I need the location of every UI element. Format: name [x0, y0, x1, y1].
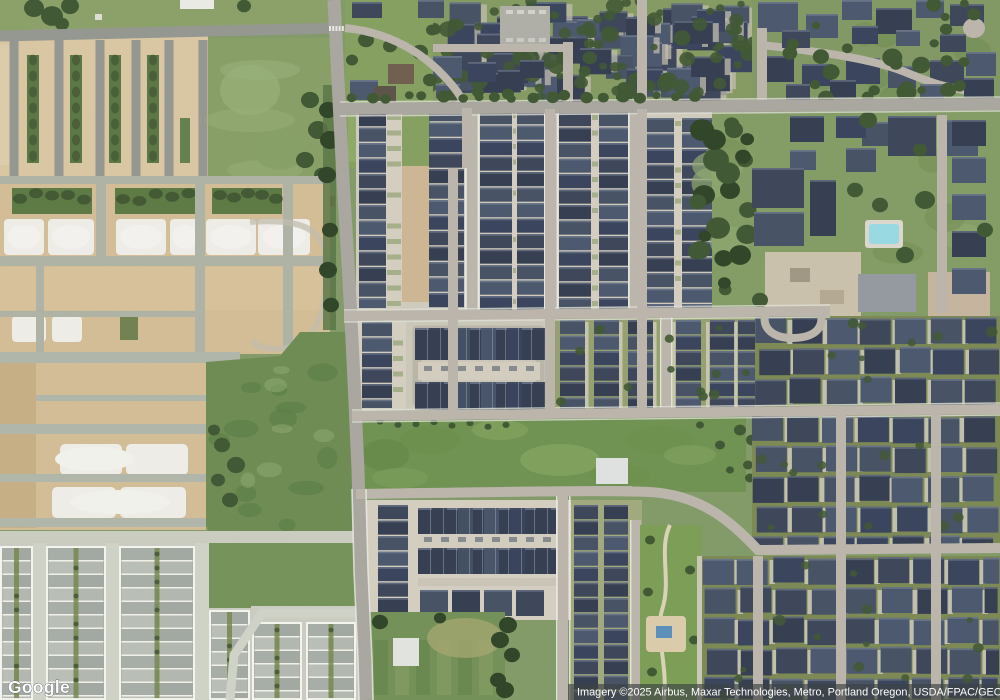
svg-text:Google: Google: [8, 677, 70, 697]
svg-text:Imagery ©2025 Airbus, Maxar Te: Imagery ©2025 Airbus, Maxar Technologies…: [577, 687, 1000, 699]
